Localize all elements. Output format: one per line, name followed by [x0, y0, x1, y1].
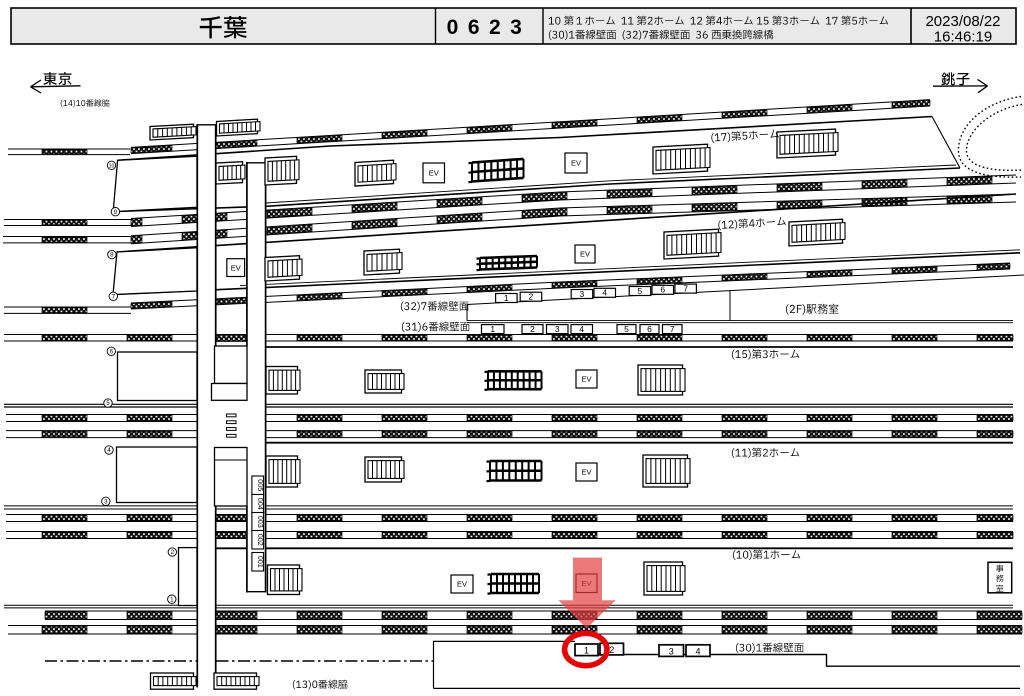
svg-text:7: 7 [683, 284, 688, 294]
svg-text:EV: EV [580, 250, 590, 259]
svg-text:1: 1 [584, 646, 589, 656]
svg-text:005: 005 [256, 479, 265, 491]
svg-text:4: 4 [107, 447, 111, 454]
svg-text:4: 4 [602, 288, 607, 298]
svg-text:003: 003 [256, 516, 265, 528]
svg-text:0623: 0623 [447, 16, 532, 39]
svg-text:5: 5 [624, 324, 629, 334]
svg-text:EV: EV [457, 580, 467, 589]
svg-text:8: 8 [110, 252, 114, 259]
svg-text:2: 2 [609, 645, 614, 655]
svg-text:1: 1 [170, 596, 174, 603]
svg-text:EV: EV [571, 159, 581, 168]
svg-text:4: 4 [579, 324, 584, 334]
svg-text:EV: EV [231, 263, 241, 272]
svg-text:EV: EV [429, 169, 439, 178]
svg-text:6: 6 [110, 348, 114, 355]
svg-text:2: 2 [171, 549, 175, 556]
svg-text:001: 001 [256, 556, 265, 568]
svg-text:5: 5 [106, 400, 110, 407]
svg-text:2023/08/22: 2023/08/22 [925, 13, 1000, 30]
svg-text:7: 7 [112, 293, 116, 300]
svg-text:10: 10 [109, 163, 115, 169]
svg-text:6: 6 [660, 285, 665, 295]
svg-text:6: 6 [647, 324, 652, 334]
svg-text:9: 9 [114, 209, 118, 216]
svg-text:7: 7 [670, 324, 675, 334]
svg-text:3: 3 [104, 498, 108, 505]
svg-text:EV: EV [581, 375, 591, 384]
svg-text:4: 4 [695, 646, 700, 656]
svg-text:2: 2 [530, 324, 535, 334]
svg-text:1: 1 [504, 293, 509, 303]
svg-text:004: 004 [256, 498, 265, 510]
svg-text:002: 002 [256, 534, 265, 546]
svg-text:EV: EV [581, 468, 591, 477]
svg-text:2: 2 [529, 292, 534, 302]
svg-text:3: 3 [669, 646, 674, 656]
svg-text:16:46:19: 16:46:19 [934, 29, 992, 46]
svg-text:5: 5 [638, 286, 643, 296]
svg-text:1: 1 [490, 324, 495, 334]
svg-text:3: 3 [555, 324, 560, 334]
svg-text:3: 3 [580, 289, 585, 299]
